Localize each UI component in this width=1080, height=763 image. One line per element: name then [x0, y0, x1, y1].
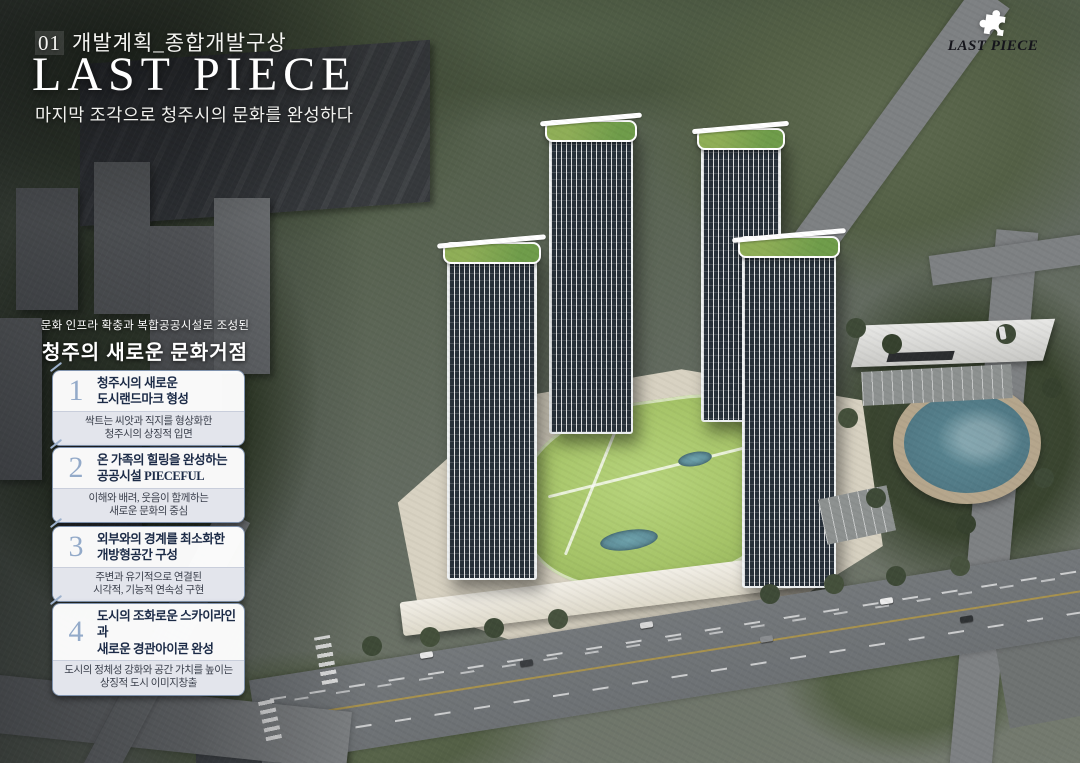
key-point-card-4: 4 도시의 조화로운 스카이라인과 새로운 경관아이콘 완성 도시의 정체성 강… — [52, 603, 245, 696]
tower-roof-garden — [697, 128, 785, 150]
card-title-line1: 도시의 조화로운 스카이라인과 — [97, 608, 238, 641]
apartment-block-2 — [94, 162, 150, 314]
park-edge-trees — [846, 318, 866, 338]
tower-roof-garden — [738, 236, 840, 258]
logo-text: LAST PIECE — [928, 38, 1058, 55]
card-description: 주변과 유기적으로 연결된 시각적, 기능적 연속성 구현 — [53, 567, 244, 602]
tower-roof-garden — [545, 120, 637, 142]
panel-heading: 청주의 새로운 문화거점 — [18, 336, 272, 365]
card-title-line2: 공공시설 PIECEFUL — [97, 468, 238, 484]
big-box-store — [851, 319, 1055, 368]
card-desc-line1: 싹트는 씨앗과 직지를 형상화한 — [57, 415, 240, 428]
residential-tower-front-left — [447, 250, 537, 580]
card-title: 청주시의 새로운 도시랜드마크 형성 — [91, 375, 238, 408]
card-number: 1 — [61, 376, 91, 406]
key-point-card-1: 1 청주시의 새로운 도시랜드마크 형성 싹트는 씨앗과 직지를 형상화한 청주… — [52, 370, 245, 446]
card-title: 외부와의 경계를 최소화한 개방형공간 구성 — [91, 531, 238, 564]
residential-tower-back-left — [549, 128, 633, 434]
card-description: 도시의 정체성 강화와 공간 가치를 높이는 상징적 도시 이미지창출 — [53, 660, 244, 695]
card-title-line2: 도시랜드마크 형성 — [97, 391, 238, 407]
street-trees-row — [362, 636, 382, 656]
card-desc-line1: 도시의 정체성 강화와 공간 가치를 높이는 — [57, 664, 240, 677]
card-title-line2: 새로운 경관아이콘 완성 — [97, 641, 238, 657]
card-description: 싹트는 씨앗과 직지를 형상화한 청주시의 상징적 입면 — [53, 411, 244, 446]
panel-header: 문화 인프라 확충과 복합공공시설로 조성된 청주의 새로운 문화거점 — [18, 317, 272, 365]
key-point-card-3: 3 외부와의 경계를 최소화한 개방형공간 구성 주변과 유기적으로 연결된 시… — [52, 526, 245, 602]
card-title-line2: 개방형공간 구성 — [97, 547, 238, 563]
apartment-block-1 — [16, 188, 78, 310]
card-number: 2 — [61, 453, 91, 483]
card-desc-line1: 주변과 유기적으로 연결된 — [57, 571, 240, 584]
card-title: 도시의 조화로운 스카이라인과 새로운 경관아이콘 완성 — [91, 608, 238, 657]
page-title: LAST PIECE — [32, 47, 356, 102]
panel-tagline: 문화 인프라 확충과 복합공공시설로 조성된 — [18, 317, 272, 333]
card-title-line1: 청주시의 새로운 — [97, 375, 238, 391]
card-number: 3 — [61, 532, 91, 562]
puzzle-piece-icon — [973, 6, 1013, 40]
card-desc-line2: 새로운 문화의 중심 — [57, 505, 240, 518]
residential-tower-front-right — [742, 244, 836, 588]
key-point-card-2: 2 온 가족의 힐링을 완성하는 공공시설 PIECEFUL 이해와 배려, 웃… — [52, 447, 245, 523]
card-desc-line2: 청주시의 상징적 입면 — [57, 428, 240, 441]
card-desc-line2: 시각적, 기능적 연속성 구현 — [57, 584, 240, 597]
card-number: 4 — [61, 617, 91, 647]
presentation-slide: Last Piece — [0, 0, 1080, 763]
card-title-line1: 외부와의 경계를 최소화한 — [97, 531, 238, 547]
page-subtitle: 마지막 조각으로 청주시의 문화를 완성하다 — [35, 102, 353, 127]
card-description: 이해와 배려, 웃음이 함께하는 새로운 문화의 중심 — [53, 488, 244, 523]
card-title-line1: 온 가족의 힐링을 완성하는 — [97, 452, 238, 468]
card-desc-line1: 이해와 배려, 웃음이 함께하는 — [57, 492, 240, 505]
brand-logo: LAST PIECE — [928, 6, 1058, 55]
tower-roof-garden — [443, 242, 541, 264]
card-title: 온 가족의 힐링을 완성하는 공공시설 PIECEFUL — [91, 452, 238, 485]
card-desc-line2: 상징적 도시 이미지창출 — [57, 677, 240, 690]
